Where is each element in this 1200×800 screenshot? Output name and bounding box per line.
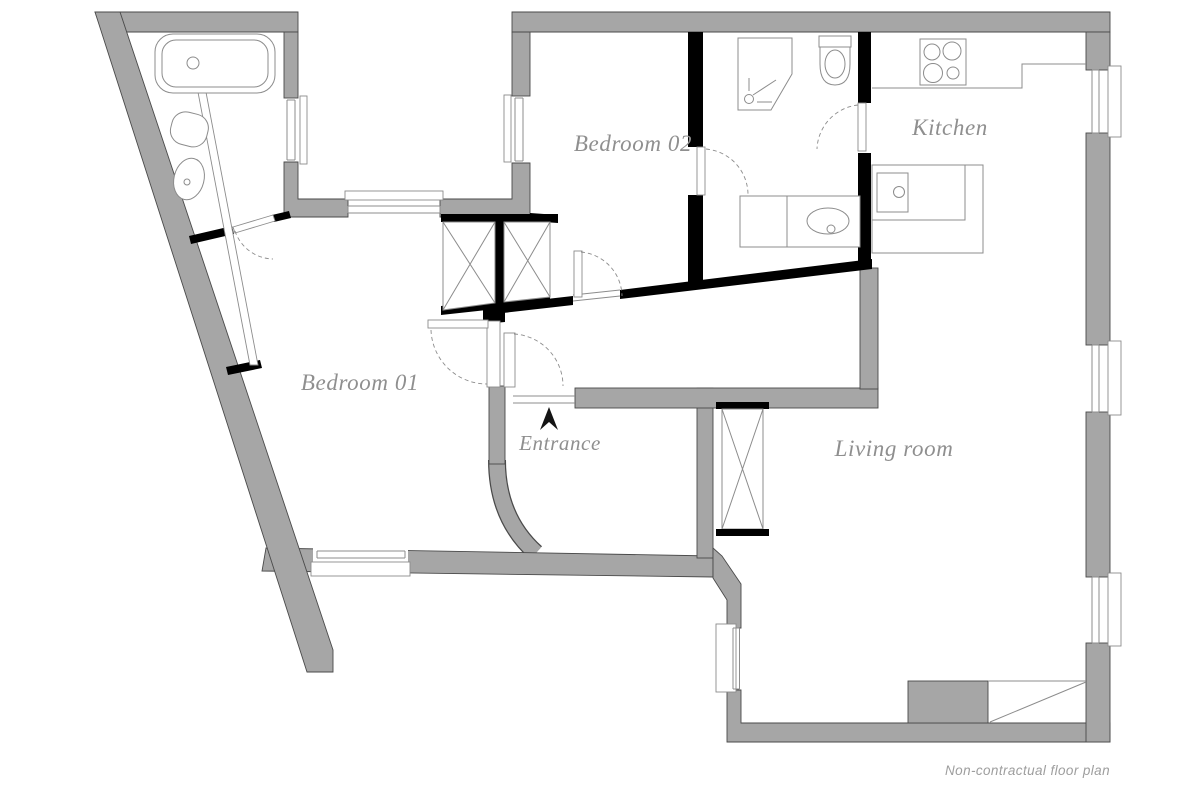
window-bedroom01-front (311, 545, 410, 576)
duct-x-box (443, 222, 495, 310)
kitchen-island-sink (872, 165, 983, 253)
door-bathroom (233, 215, 275, 259)
door-kitchen-shower (817, 103, 866, 151)
door-shower-room (697, 147, 748, 195)
room-label-living-room: Living room (834, 436, 954, 461)
door-entry (504, 333, 575, 403)
stove (920, 39, 966, 85)
room-label-bedroom-02: Bedroom 02 (574, 131, 692, 156)
niche-diagonal (988, 681, 1086, 722)
duct-x-box-living (716, 402, 769, 536)
window-facade-middle (1092, 341, 1121, 415)
floor-plan-page: Bedroom 01 Bedroom 02 Kitchen Living roo… (0, 0, 1200, 800)
window-bedroom02-courtyard (504, 95, 523, 162)
room-label-kitchen: Kitchen (911, 115, 988, 140)
chimney-pier (908, 681, 988, 723)
window-hall-lower (716, 624, 740, 692)
disclaimer-note: Non-contractual floor plan (945, 763, 1110, 778)
vanity-sink (740, 196, 860, 247)
kitchen-counter (872, 64, 1086, 88)
window-facade-lower (1092, 573, 1121, 646)
window-courtyard-bottom (345, 191, 443, 213)
window-bathroom-courtyard (287, 96, 307, 164)
floor-plan-drawing: Bedroom 01 Bedroom 02 Kitchen Living roo… (0, 0, 1200, 800)
door-bedroom01-hall (428, 320, 488, 384)
hall-partition (487, 321, 500, 387)
duct-x-box (504, 222, 550, 302)
window-facade-top (1092, 66, 1121, 137)
bathtub (155, 34, 275, 93)
curved-wall (497, 460, 536, 553)
shower (738, 38, 792, 110)
toilet-shower-room (819, 36, 851, 85)
room-label-entrance: Entrance (518, 431, 601, 455)
door-bedroom02 (573, 251, 622, 301)
room-label-bedroom-01: Bedroom 01 (301, 370, 419, 395)
entrance-arrow-icon (540, 407, 558, 430)
